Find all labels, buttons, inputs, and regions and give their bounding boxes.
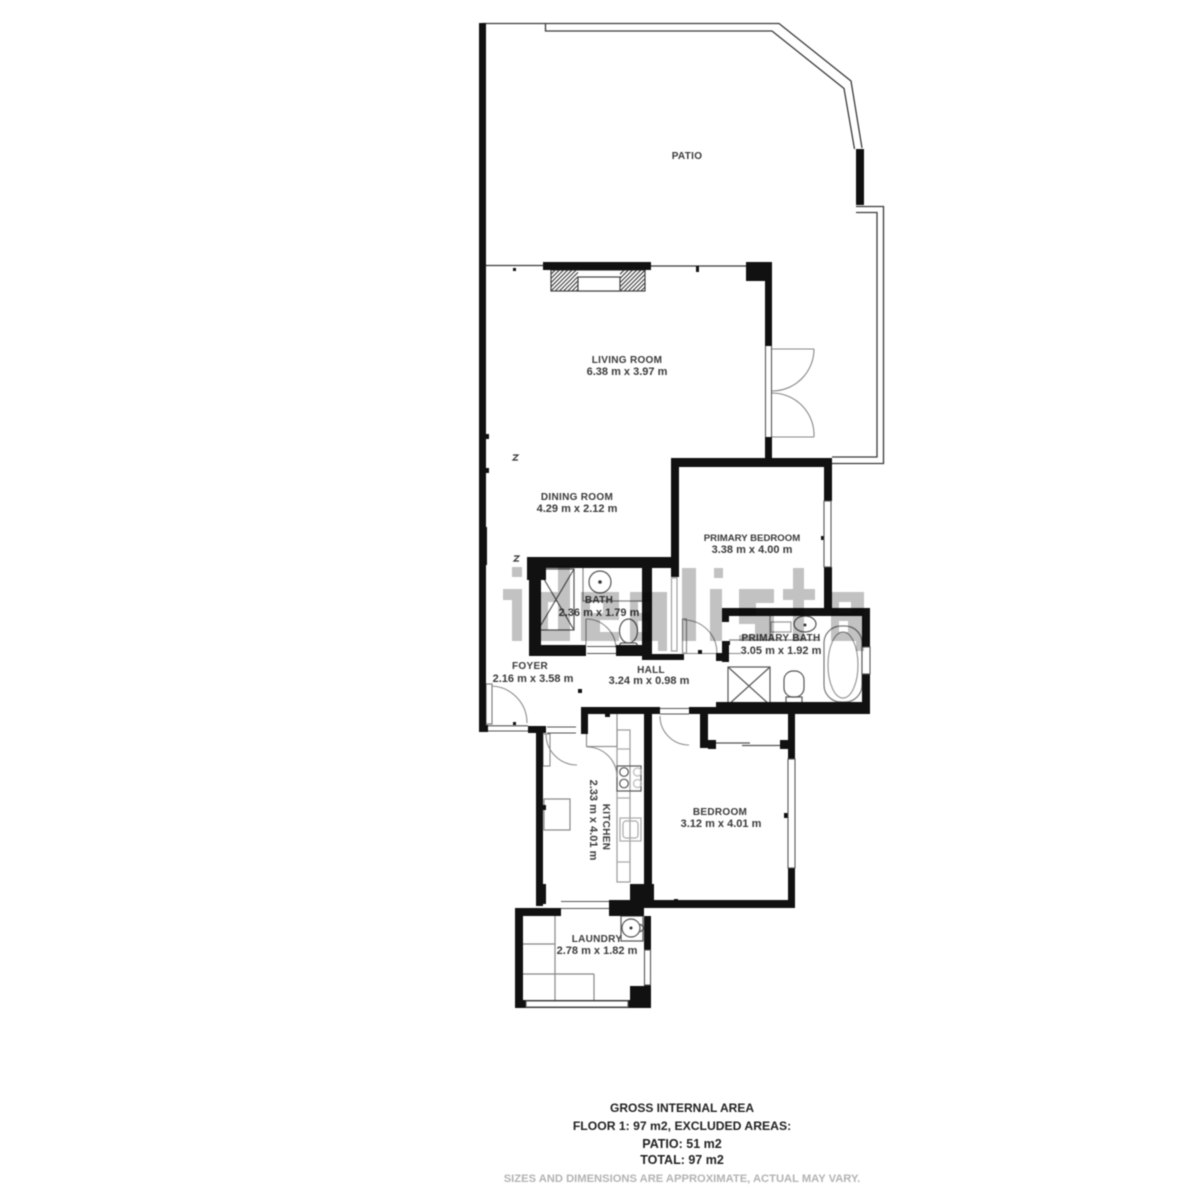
- svg-text:2.16 m x 3.58 m: 2.16 m x 3.58 m: [493, 673, 574, 685]
- svg-text:FOYER: FOYER: [512, 661, 548, 672]
- svg-text:2.78 m x 1.82 m: 2.78 m x 1.82 m: [557, 945, 638, 957]
- svg-text:BEDROOM: BEDROOM: [693, 807, 747, 818]
- svg-text:3.12 m x 4.01 m: 3.12 m x 4.01 m: [681, 818, 762, 830]
- svg-text:KITCHEN: KITCHEN: [600, 804, 611, 851]
- svg-text:TOTAL: 97 m2: TOTAL: 97 m2: [640, 1153, 724, 1167]
- svg-text:SIZES AND DIMENSIONS ARE APPRO: SIZES AND DIMENSIONS ARE APPROXIMATE, AC…: [504, 1173, 861, 1185]
- svg-text:LAUNDRY: LAUNDRY: [572, 934, 623, 945]
- svg-text:3.05 m x 1.92 m: 3.05 m x 1.92 m: [741, 645, 822, 657]
- svg-text:4.29 m x 2.12 m: 4.29 m x 2.12 m: [537, 503, 618, 515]
- svg-text:6.38 m x 3.97 m: 6.38 m x 3.97 m: [587, 366, 668, 378]
- svg-text:DINING ROOM: DINING ROOM: [541, 492, 613, 503]
- svg-text:FLOOR 1: 97 m2, EXCLUDED AREAS: FLOOR 1: 97 m2, EXCLUDED AREAS:: [573, 1119, 791, 1133]
- svg-text:LIVING ROOM: LIVING ROOM: [592, 355, 663, 366]
- svg-text:3.38 m x 4.00 m: 3.38 m x 4.00 m: [712, 544, 793, 556]
- svg-text:PATIO: PATIO: [672, 151, 703, 162]
- svg-text:2.33 m x 4.01 m: 2.33 m x 4.01 m: [587, 780, 599, 861]
- svg-text:GROSS INTERNAL AREA: GROSS INTERNAL AREA: [610, 1101, 754, 1115]
- svg-text:PATIO: 51 m2: PATIO: 51 m2: [642, 1137, 721, 1151]
- svg-text:3.24 m x 0.98 m: 3.24 m x 0.98 m: [609, 675, 690, 687]
- svg-text:PRIMARY BEDROOM: PRIMARY BEDROOM: [704, 533, 800, 544]
